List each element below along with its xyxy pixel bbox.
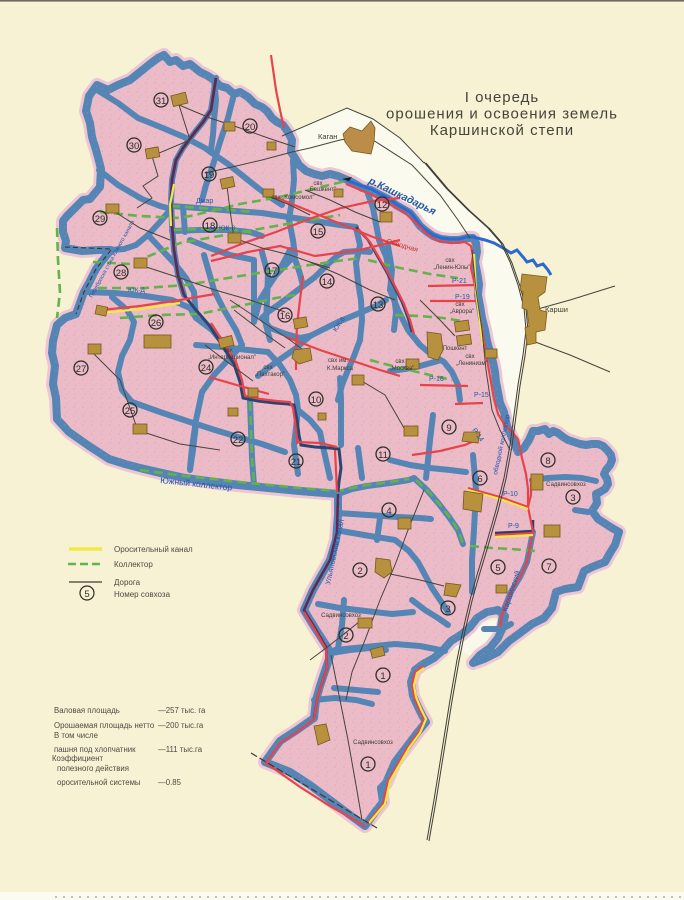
svg-text:Пошкент: Пошкент [443, 346, 468, 352]
svg-text:полезного действия: полезного действия [57, 764, 129, 773]
svg-text:Р-9: Р-9 [508, 523, 519, 530]
svg-text:„Аврора": „Аврора" [450, 309, 475, 315]
svg-text:19: 19 [204, 170, 215, 181]
svg-text:25: 25 [125, 406, 136, 417]
svg-text:Р-21: Р-21 [452, 278, 467, 285]
svg-text:Садвинсовхоз: Садвинсовхоз [321, 613, 361, 619]
svg-text:13: 13 [373, 300, 384, 311]
svg-text:5: 5 [84, 589, 89, 600]
svg-text:пашня под хлопчатник: пашня под хлопчатник [54, 745, 136, 754]
svg-text:Р-16: Р-16 [429, 376, 444, 383]
svg-text:22: 22 [233, 435, 244, 446]
svg-text:свх „Комсомол": свх „Комсомол" [271, 195, 314, 201]
svg-text:18: 18 [205, 221, 216, 232]
svg-text:Валовая площадь: Валовая площадь [54, 706, 120, 715]
svg-text:„Пахтакор": „Пахтакор" [255, 372, 285, 378]
svg-text:Каган: Каган [318, 132, 337, 141]
svg-text:свх: свх [223, 348, 232, 354]
svg-text:6: 6 [477, 474, 482, 485]
svg-text:1: 1 [380, 671, 385, 682]
svg-text:I очередь: I очередь [465, 89, 539, 106]
svg-text:14: 14 [322, 277, 333, 288]
svg-text:„Ленинизм": „Ленинизм" [456, 361, 488, 367]
svg-text:—257 тыс. га: —257 тыс. га [158, 706, 206, 715]
svg-text:2: 2 [343, 631, 348, 642]
svg-text:свх: свх [455, 302, 464, 308]
svg-text:5: 5 [495, 563, 500, 574]
svg-text:17: 17 [267, 266, 278, 277]
svg-text:10: 10 [311, 395, 322, 406]
svg-text:24: 24 [201, 363, 212, 374]
svg-text:Каршинской степи: Каршинской степи [430, 122, 574, 139]
svg-text:12: 12 [377, 200, 388, 211]
svg-text:свх: свх [445, 258, 454, 264]
svg-text:28: 28 [116, 268, 127, 279]
svg-text:2: 2 [357, 566, 362, 577]
svg-text:20: 20 [245, 122, 256, 133]
svg-text:1: 1 [365, 760, 370, 771]
svg-text:7: 7 [546, 562, 551, 573]
svg-text:свх: свх [465, 354, 474, 360]
svg-text:15: 15 [313, 227, 324, 238]
svg-text:3: 3 [445, 604, 450, 615]
svg-text:9: 9 [446, 423, 451, 434]
svg-text:Садвинсовхоз: Садвинсовхоз [353, 740, 393, 746]
svg-text:„Интернационал": „Интернационал" [208, 355, 256, 361]
svg-text:оросительной системы: оросительной системы [57, 778, 141, 787]
svg-text:Р-15: Р-15 [474, 392, 489, 399]
svg-text:31: 31 [156, 96, 167, 107]
svg-text:свх: свх [395, 359, 404, 365]
svg-text:26: 26 [151, 318, 162, 329]
svg-text:Садвинсовхоз: Садвинсовхоз [546, 482, 586, 488]
svg-text:30: 30 [129, 141, 140, 152]
svg-text:Р-19: Р-19 [455, 294, 470, 301]
svg-text:свх им.: свх им. [328, 358, 348, 364]
svg-text:—0.85: —0.85 [158, 778, 182, 787]
svg-text:орошения и освоения земель: орошения и освоения земель [386, 106, 618, 123]
svg-text:Дорога: Дорога [114, 578, 141, 587]
svg-text:„Бешкент": „Бешкент" [308, 187, 336, 193]
svg-text:—200 тыс.га: —200 тыс.га [158, 721, 204, 730]
svg-text:ЮК-8: ЮК-8 [219, 225, 236, 232]
svg-text:В том числе: В том числе [54, 731, 98, 740]
svg-text:Р-10: Р-10 [503, 491, 518, 498]
svg-text:Коллектор: Коллектор [114, 560, 153, 569]
svg-text:ЮК-Д: ЮК-Д [128, 287, 146, 294]
svg-text:Орошаемая площадь нетто: Орошаемая площадь нетто [54, 721, 155, 730]
svg-text:11: 11 [378, 450, 388, 461]
svg-text:29: 29 [95, 214, 106, 225]
svg-text:27: 27 [76, 364, 87, 375]
svg-text:4: 4 [386, 506, 391, 517]
svg-text:Оросительный канал: Оросительный канал [114, 545, 193, 554]
svg-text:Джар: Джар [196, 198, 213, 205]
svg-text:8: 8 [545, 456, 550, 467]
svg-text:„Ленин-Юлы": „Ленин-Юлы" [434, 265, 471, 271]
svg-text:Номер совхоза: Номер совхоза [114, 590, 171, 599]
svg-text:свх: свх [263, 365, 272, 371]
svg-text:3: 3 [570, 493, 575, 504]
svg-text:Карши: Карши [545, 305, 568, 314]
svg-text:—111 тыс.га: —111 тыс.га [158, 745, 203, 754]
svg-text:16: 16 [280, 311, 291, 322]
svg-text:Коэффициент: Коэффициент [52, 754, 104, 763]
svg-text:„Москва": „Москва" [390, 366, 415, 372]
svg-text:К.Маркса: К.Маркса [327, 366, 354, 372]
svg-text:21: 21 [291, 457, 302, 468]
